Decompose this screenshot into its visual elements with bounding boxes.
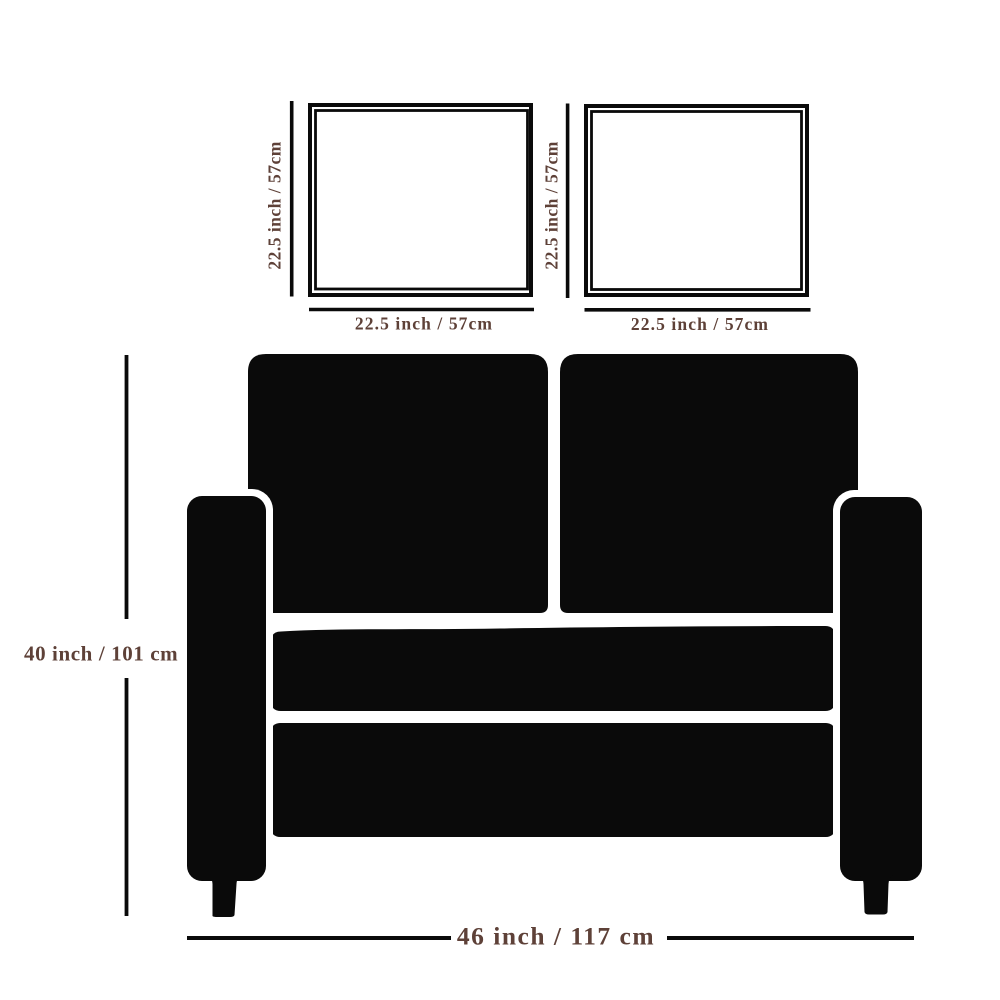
svg-text:22.5 inch / 57cm: 22.5 inch / 57cm (355, 314, 493, 334)
svg-text:46 inch / 117 cm: 46 inch / 117 cm (457, 922, 655, 951)
svg-text:40 inch / 101 cm: 40 inch / 101 cm (24, 642, 178, 666)
svg-text:22.5 inch / 57cm: 22.5 inch / 57cm (631, 314, 769, 334)
svg-text:22.5 inch / 57cm: 22.5 inch / 57cm (265, 141, 285, 270)
svg-text:22.5 inch / 57cm: 22.5 inch / 57cm (542, 141, 562, 270)
